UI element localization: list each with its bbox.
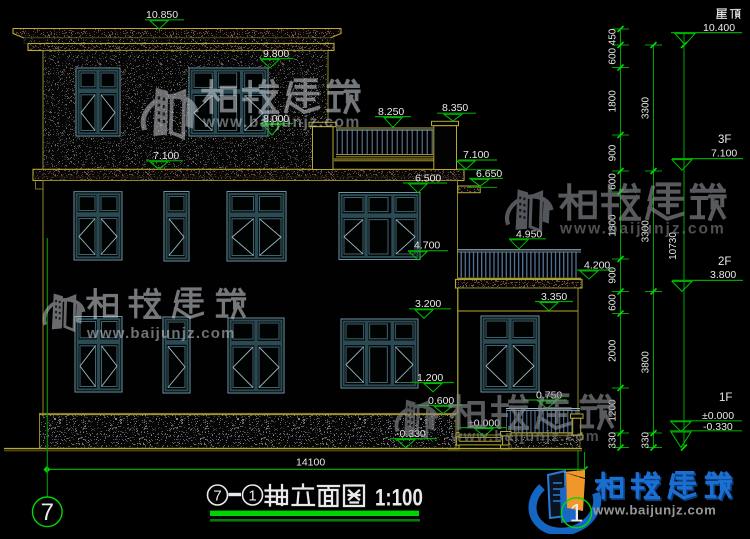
svg-text:www.baijunjz.com: www.baijunjz.com (86, 325, 236, 342)
svg-text:4.700: 4.700 (414, 240, 440, 252)
svg-text:www.baijunjz.com: www.baijunjz.com (202, 114, 361, 131)
svg-text:2F: 2F (718, 256, 731, 268)
svg-text:www.baijunjz.com: www.baijunjz.com (559, 221, 726, 238)
svg-text:2000: 2000 (608, 339, 619, 362)
svg-text:3800: 3800 (641, 351, 652, 374)
svg-text:14100: 14100 (296, 457, 325, 469)
svg-text:450: 450 (608, 28, 619, 45)
svg-text:1800: 1800 (608, 90, 619, 113)
svg-text:8.350: 8.350 (442, 102, 468, 114)
svg-text:330: 330 (641, 431, 652, 448)
svg-text:www.baijunjz.com: www.baijunjz.com (592, 503, 716, 518)
svg-text:1: 1 (570, 500, 584, 528)
svg-text:1:100: 1:100 (375, 484, 423, 511)
svg-text:330: 330 (608, 431, 619, 448)
svg-text:600: 600 (608, 294, 619, 311)
svg-text:7.100: 7.100 (711, 148, 737, 160)
svg-text:1F: 1F (719, 392, 732, 404)
svg-text:3300: 3300 (641, 96, 652, 119)
svg-text:7.100: 7.100 (463, 149, 489, 161)
svg-text:www.baijunjz.com: www.baijunjz.com (450, 429, 600, 445)
svg-text:600: 600 (608, 47, 619, 64)
svg-text:900: 900 (608, 144, 619, 161)
svg-text:900: 900 (608, 266, 619, 283)
svg-text:1: 1 (248, 488, 256, 505)
svg-text:3.800: 3.800 (710, 269, 736, 281)
svg-text:7: 7 (213, 488, 221, 505)
svg-text:7: 7 (41, 499, 54, 526)
svg-text:3F: 3F (718, 134, 731, 146)
